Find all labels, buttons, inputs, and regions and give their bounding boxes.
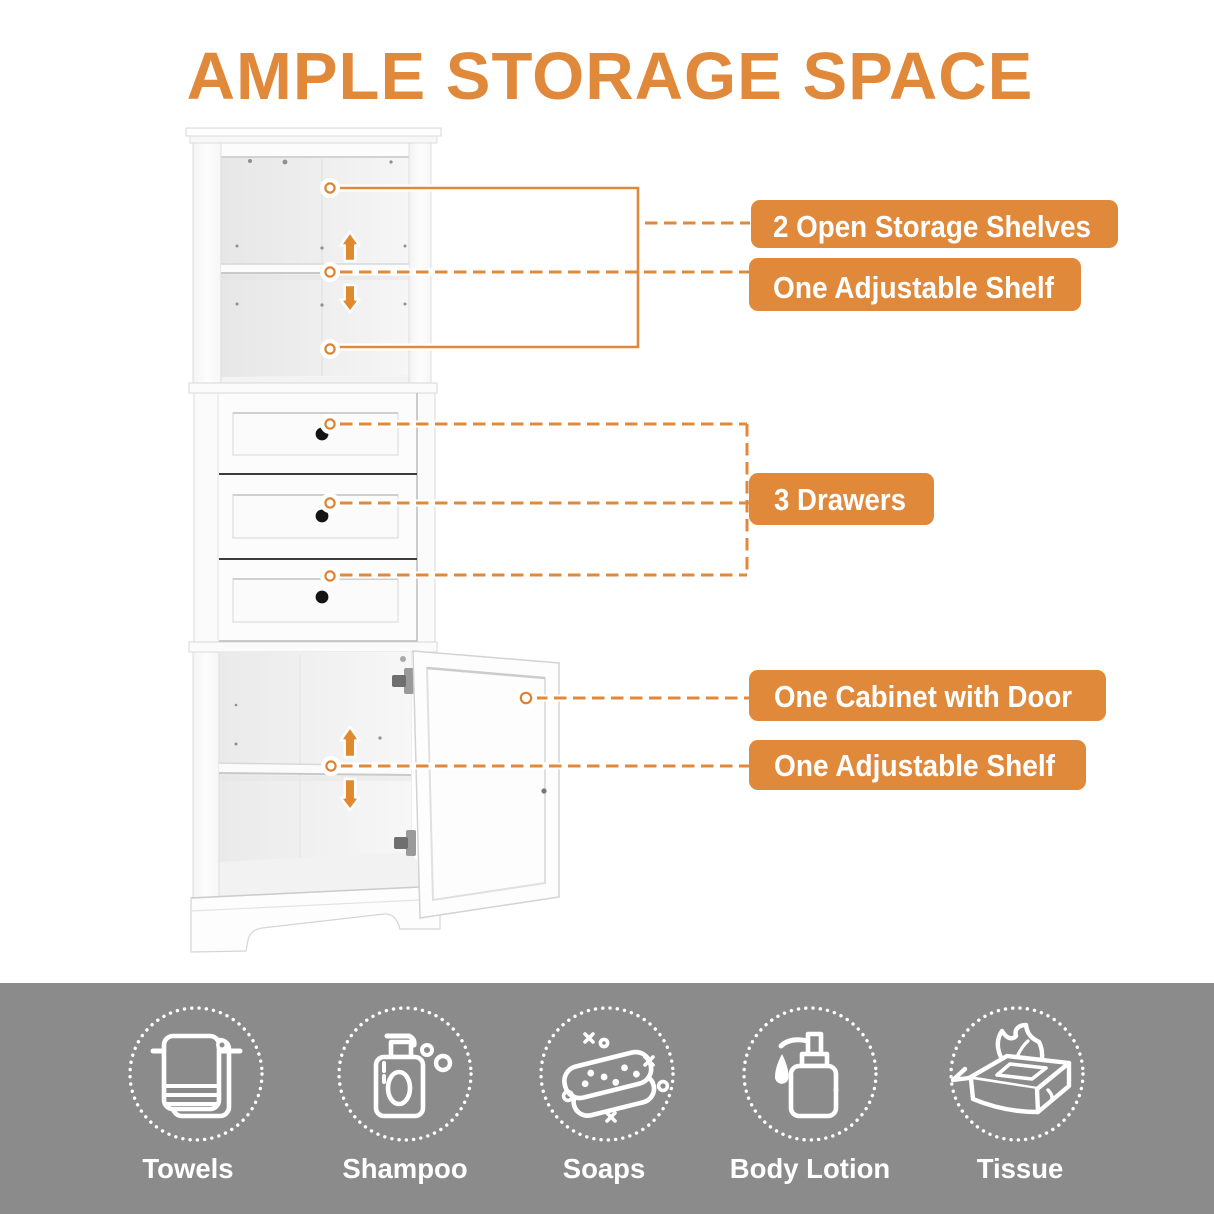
svg-text:One Adjustable Shelf: One Adjustable Shelf (774, 748, 1056, 783)
svg-text:Body Lotion: Body Lotion (730, 1153, 890, 1184)
svg-text:One Cabinet with Door: One Cabinet with Door (774, 679, 1072, 714)
svg-text:Tissue: Tissue (977, 1153, 1064, 1184)
svg-text:Towels: Towels (142, 1153, 233, 1184)
svg-text:Soaps: Soaps (563, 1153, 646, 1184)
svg-text:One Adjustable Shelf: One Adjustable Shelf (773, 270, 1055, 305)
svg-text:Shampoo: Shampoo (342, 1153, 467, 1184)
svg-text:2 Open Storage Shelves: 2 Open Storage Shelves (773, 209, 1091, 244)
svg-text:AMPLE STORAGE SPACE: AMPLE STORAGE SPACE (187, 39, 1034, 114)
svg-text:3 Drawers: 3 Drawers (774, 482, 906, 517)
